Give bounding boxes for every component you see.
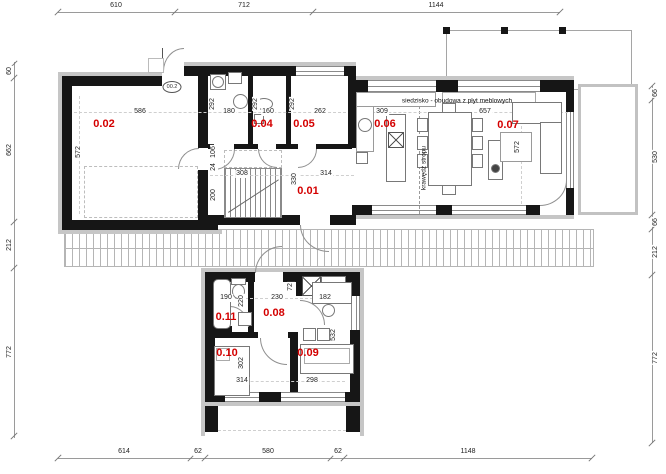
dim-utility-depth: 292 xyxy=(209,97,217,111)
dim-wardrobe-width: 262 xyxy=(313,108,327,116)
dim-wc-depth: 292 xyxy=(252,97,260,111)
patio-dashed-edge xyxy=(218,430,346,431)
boiler xyxy=(228,72,242,84)
canopy-column xyxy=(501,27,508,34)
dim-bedroom-depth: 302 xyxy=(238,356,246,370)
canopy-column xyxy=(443,27,450,34)
dining-chair xyxy=(472,118,483,132)
dim-right-2: 530 xyxy=(652,150,660,164)
wall-insulation xyxy=(360,406,364,436)
dim-line-top xyxy=(58,12,560,13)
dim-garage-depth: 572 xyxy=(75,145,83,159)
dim-bottom-3: 580 xyxy=(261,448,275,456)
dim-living-depth: 572 xyxy=(514,140,522,154)
window-living-east xyxy=(566,112,574,188)
dim-bottom-2: 62 xyxy=(193,448,203,456)
dim-hall-a: 106 xyxy=(210,145,218,159)
wall-partition xyxy=(215,332,258,338)
dim-stairs-width: 308 xyxy=(235,170,249,178)
east-terrace xyxy=(578,84,638,215)
wall-insulation xyxy=(352,215,574,219)
dim-bottom-1: 614 xyxy=(117,448,131,456)
dim-left-2: 662 xyxy=(6,143,14,157)
wall-extension xyxy=(346,406,360,432)
room-label-0-04: 0.04 xyxy=(251,118,272,130)
dim-right-1: 66 xyxy=(652,88,660,98)
bath-washbasin xyxy=(238,312,252,326)
sofa-chaise xyxy=(540,122,562,174)
dim-line-left xyxy=(14,62,15,438)
room-label-0-10: 0.10 xyxy=(216,347,237,359)
window-kitchen xyxy=(368,80,436,92)
room-label-0-07: 0.07 xyxy=(497,119,518,131)
utility-sink xyxy=(233,94,248,109)
annotation-ceiling-edge: krawędź stropu xyxy=(421,146,428,190)
window-living-south xyxy=(452,205,526,215)
entry-door-tag: 00.2 xyxy=(163,81,182,93)
dim-bath-depth: 220 xyxy=(238,294,246,308)
garage-projection xyxy=(84,166,198,218)
entry-step xyxy=(148,58,164,73)
wardrobe-door-arc xyxy=(298,149,317,168)
dim-living-width: 657 xyxy=(478,108,492,116)
floor-plan: 610 712 1144 614 62 580 62 1148 60 662 2… xyxy=(0,0,666,474)
dim-hall-c: 200 xyxy=(210,188,218,202)
dim-top-2: 712 xyxy=(237,2,251,10)
dim-office-width-top: 182 xyxy=(318,294,332,302)
bedroom-door-arc xyxy=(260,338,287,365)
room-label-0-05: 0.05 xyxy=(293,118,314,130)
wall-segment xyxy=(348,66,356,148)
wall-segment xyxy=(352,205,372,215)
dim-right-5: 772 xyxy=(652,351,660,365)
pouf xyxy=(303,328,316,341)
wall-partition xyxy=(276,144,298,149)
dim-hall-width: 314 xyxy=(319,170,333,178)
room-label-0-06: 0.06 xyxy=(374,118,395,130)
wall-segment xyxy=(345,392,360,402)
wall-segment xyxy=(198,66,208,148)
wall-segment xyxy=(526,205,540,215)
cooktop-icon xyxy=(388,132,404,148)
dim-wardrobe-depth: 292 xyxy=(289,97,297,111)
dining-chair xyxy=(472,154,483,168)
dim-line-bottom xyxy=(58,458,592,459)
dim-top-1: 610 xyxy=(109,2,123,10)
dim-bottom-4: 62 xyxy=(333,448,343,456)
dim-tick xyxy=(10,432,17,439)
deck-terrace xyxy=(64,229,594,267)
dim-kitchen-width: 309 xyxy=(375,108,389,116)
dim-hall-depth: 330 xyxy=(291,172,299,186)
garage-door-arc xyxy=(178,148,199,169)
dim-right-3: 66 xyxy=(652,217,660,227)
dining-table xyxy=(428,112,472,186)
room-label-0-01: 0.01 xyxy=(297,185,318,197)
dim-closet-depth: 72 xyxy=(287,282,295,292)
canopy-column xyxy=(559,27,566,34)
dim-tick xyxy=(588,454,595,461)
washing-machine-drum xyxy=(212,76,224,88)
kitchen-sink xyxy=(358,118,372,132)
wall-extension xyxy=(205,406,218,432)
dim-left-1: 60 xyxy=(6,66,14,76)
dim-right-4: 212 xyxy=(652,245,660,259)
window-office-east xyxy=(351,296,360,330)
wall-segment xyxy=(566,92,574,112)
dim-bottom-5: 1148 xyxy=(459,448,476,456)
office-chair xyxy=(322,304,335,317)
room-label-0-11: 0.11 xyxy=(216,311,237,323)
stove-icon xyxy=(491,164,500,173)
dim-left-3: 212 xyxy=(6,238,14,252)
dim-wc-width: 160 xyxy=(261,108,275,116)
wall-segment xyxy=(62,76,72,230)
dim-line-right xyxy=(652,86,653,443)
window-wardrobe xyxy=(296,66,344,76)
window-kitchen-south xyxy=(372,205,436,215)
window-office-south xyxy=(281,392,345,402)
dim-garage-width: 586 xyxy=(133,108,147,116)
dim-guide xyxy=(74,112,346,113)
wall-insulation xyxy=(201,402,364,406)
wall-segment xyxy=(62,76,162,86)
wall-segment xyxy=(566,205,574,215)
window-living-north xyxy=(458,80,540,92)
kitchen-cabinet xyxy=(356,152,368,164)
wall-insulation xyxy=(58,230,222,234)
dim-left-4: 772 xyxy=(6,345,14,359)
wall-segment xyxy=(436,205,452,215)
wall-partition xyxy=(316,144,352,149)
dining-chair xyxy=(442,103,456,113)
dining-chair xyxy=(442,185,456,195)
wall-segment xyxy=(259,392,281,402)
dim-top-3: 1144 xyxy=(427,2,444,10)
dining-chair xyxy=(417,118,428,132)
wall-segment xyxy=(62,220,218,230)
dim-corridor-width: 230 xyxy=(270,294,284,302)
wall-partition xyxy=(234,144,258,149)
dim-bath-width: 190 xyxy=(219,294,233,302)
wall-segment xyxy=(348,215,356,225)
dim-utility-width: 180 xyxy=(222,108,236,116)
dim-hall-b: 24 xyxy=(210,162,218,172)
dim-office-width: 298 xyxy=(305,377,319,385)
dining-chair xyxy=(472,136,483,150)
wall-segment xyxy=(436,80,458,92)
room-label-0-02: 0.02 xyxy=(93,118,114,130)
dim-bedroom-width: 314 xyxy=(235,377,249,385)
entry-door-arc xyxy=(163,48,184,71)
annotation-seating: siedzisko - obudowa z płyt meblowych xyxy=(402,98,512,105)
room-label-0-09: 0.09 xyxy=(297,347,318,359)
sofa-back xyxy=(512,102,562,124)
living-terrace-door-arc xyxy=(540,180,567,206)
dim-tick xyxy=(556,8,563,15)
pouf xyxy=(317,328,330,341)
wall-segment xyxy=(352,80,368,92)
room-label-0-08: 0.08 xyxy=(263,307,284,319)
dim-tick xyxy=(648,439,655,446)
dim-office-depth: 532 xyxy=(330,328,338,342)
wall-segment xyxy=(540,80,574,92)
wall-insulation xyxy=(201,406,205,436)
